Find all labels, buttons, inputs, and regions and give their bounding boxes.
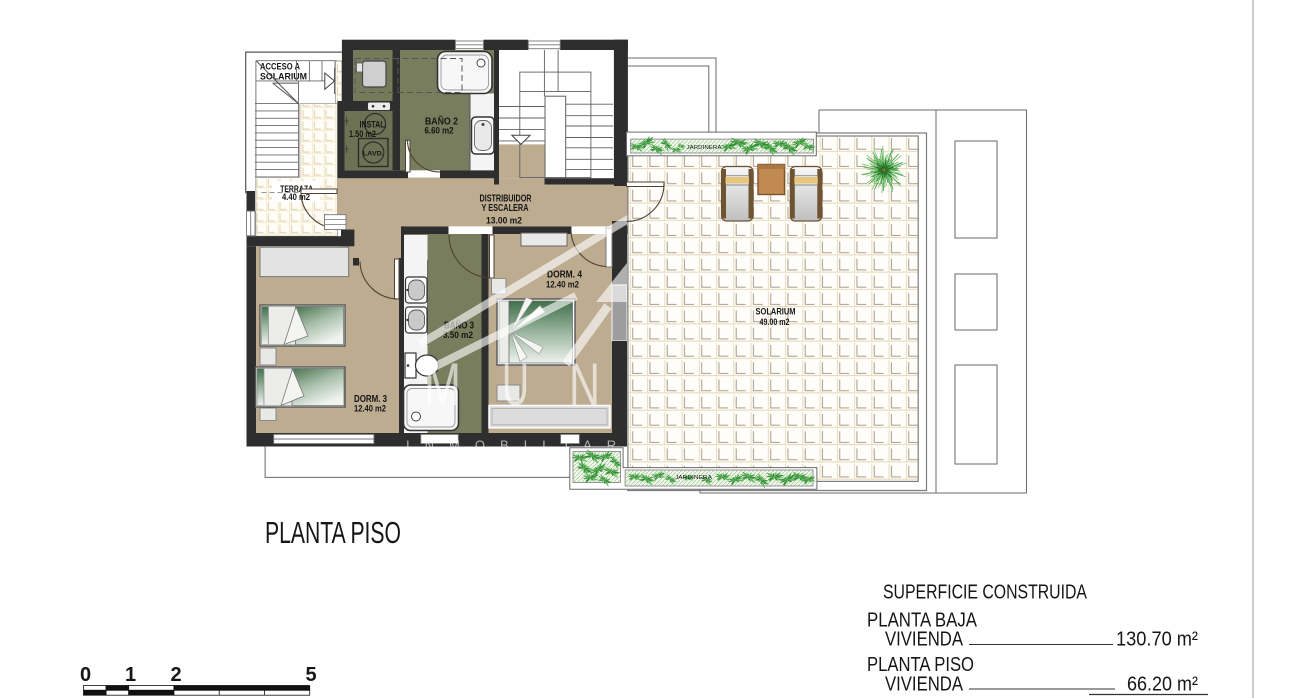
svg-text:49.00 m2: 49.00 m2 (760, 317, 790, 327)
svg-text:ACCESO A: ACCESO A (260, 62, 300, 72)
svg-text:LAVD.: LAVD. (363, 150, 384, 157)
svg-text:VIVIENDA: VIVIENDA (885, 629, 964, 651)
svg-text:66.20 m²: 66.20 m² (1127, 674, 1198, 696)
svg-text:SUPERFICIE CONSTRUIDA: SUPERFICIE CONSTRUIDA (883, 582, 1088, 604)
svg-text:JARDINERA: JARDINERA (687, 145, 722, 151)
svg-text:12.40 m2: 12.40 m2 (354, 403, 386, 413)
svg-text:Y ESCALERA: Y ESCALERA (482, 203, 529, 214)
svg-text:PLANTA PISO: PLANTA PISO (265, 515, 401, 550)
svg-text:U: U (502, 351, 529, 418)
svg-text:JARDINERA: JARDINERA (675, 475, 712, 481)
svg-text:6.60 m2: 6.60 m2 (425, 126, 454, 136)
svg-text:2: 2 (170, 664, 181, 686)
svg-text:SOLARIUM: SOLARIUM (756, 306, 796, 317)
svg-text:0: 0 (80, 664, 91, 686)
svg-text:1: 1 (125, 664, 136, 686)
svg-text:5: 5 (305, 664, 316, 686)
svg-text:INSTAL.: INSTAL. (360, 118, 387, 129)
svg-text:13.00 m2: 13.00 m2 (486, 216, 522, 226)
svg-text:130.70 m²: 130.70 m² (1116, 629, 1198, 651)
svg-text:SOLARIUM: SOLARIUM (260, 72, 307, 82)
svg-text:1.50 m2: 1.50 m2 (349, 129, 376, 139)
svg-text:VIVIENDA: VIVIENDA (885, 674, 964, 696)
svg-text:12.40 m2: 12.40 m2 (546, 280, 579, 290)
